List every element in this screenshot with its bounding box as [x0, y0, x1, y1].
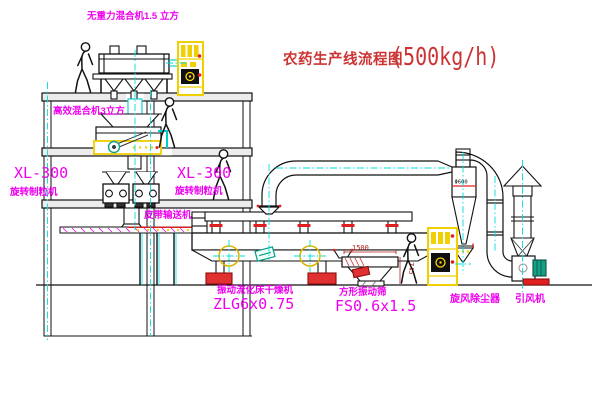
high-efficiency-mixer-label: 高效混合机3立方	[53, 107, 125, 117]
conveyor-legs	[140, 233, 174, 285]
belt-conveyor	[60, 227, 192, 285]
process-flow-diagram: Φ600	[0, 0, 600, 403]
indicator-light	[198, 54, 202, 58]
exhaust-duct	[257, 161, 452, 214]
cyclone-label: 旋风除尘器	[450, 295, 500, 305]
discharge-chute	[120, 208, 143, 229]
fluid-bed-dryer	[192, 212, 438, 284]
granulator-left-name-label: 旋转制粒机	[10, 188, 58, 198]
control-cabinet-1	[178, 42, 203, 95]
fan-base	[523, 279, 549, 285]
fan-label: 引风机	[515, 295, 545, 305]
dryer-model-label: ZLG6x0.75	[213, 297, 294, 312]
granulator-mid	[133, 172, 159, 207]
fan-motor	[533, 260, 546, 276]
granulator-mid-model-label: XL-300	[177, 166, 231, 181]
dryer-hood	[205, 212, 412, 221]
high-efficiency-mixer	[94, 114, 167, 154]
dimension-screen-length: 1500	[352, 244, 369, 252]
dryer-connectors	[210, 221, 399, 233]
page-title-capacity: (500kg/h)	[391, 44, 499, 69]
granulator-mid-name-label: 旋转制粒机	[175, 187, 223, 197]
indicator-light	[198, 73, 202, 77]
induced-draft-fan	[512, 256, 549, 285]
dryer-body	[192, 233, 430, 250]
screen-model-label: FS0.6x1.5	[335, 299, 416, 314]
belt-conveyor-label: 皮带输送机	[144, 211, 192, 221]
dryer-foot	[308, 273, 336, 284]
person-figure	[76, 43, 93, 92]
indicator-light	[451, 260, 455, 264]
page-title: 农药生产线流程图	[283, 53, 403, 68]
cyclone-diameter-note: Φ600	[455, 180, 468, 186]
control-cabinet-2	[428, 228, 457, 285]
gravity-mixer-label: 无重力混合机1.5 立方	[87, 12, 179, 22]
dryer-foot	[206, 273, 232, 284]
indicator-light	[451, 234, 455, 238]
granulator-left-model-label: XL-300	[14, 166, 68, 181]
